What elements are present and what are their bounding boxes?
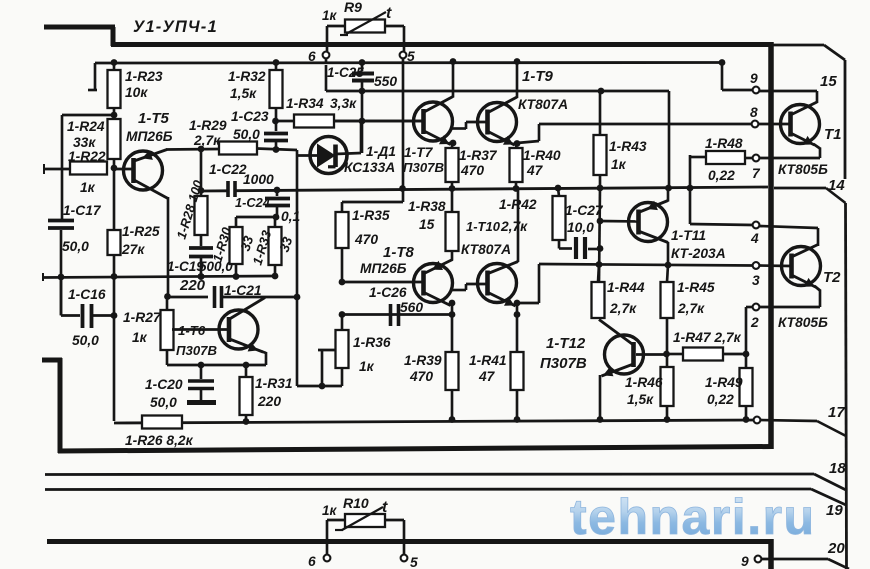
svg-text:1-R44: 1-R44: [607, 280, 645, 295]
svg-text:1-С23: 1-С23: [231, 109, 269, 124]
svg-text:1-R45: 1-R45: [677, 280, 715, 295]
svg-text:1-Т6: 1-Т6: [178, 323, 206, 338]
svg-text:560: 560: [400, 300, 423, 315]
svg-text:1-С22: 1-С22: [209, 162, 247, 177]
svg-text:КС133А: КС133А: [344, 160, 395, 175]
svg-text:1-R32: 1-R32: [228, 69, 266, 84]
svg-text:10,0: 10,0: [567, 220, 594, 235]
svg-text:1-R25: 1-R25: [122, 224, 160, 239]
svg-text:1-Т8: 1-Т8: [383, 244, 415, 261]
svg-text:3,3к: 3,3к: [330, 96, 357, 111]
svg-text:1-С20: 1-С20: [145, 377, 183, 392]
svg-text:МП26Б: МП26Б: [360, 261, 407, 276]
svg-text:2,7к: 2,7к: [677, 301, 705, 316]
svg-text:1-С17: 1-С17: [63, 203, 102, 218]
svg-text:1-С26: 1-С26: [369, 285, 407, 300]
svg-text:R10: R10: [343, 495, 369, 511]
svg-text:470: 470: [460, 163, 484, 178]
svg-text:1к: 1к: [80, 180, 96, 195]
svg-text:1,5к: 1,5к: [230, 86, 257, 101]
svg-text:1-R34: 1-R34: [286, 96, 324, 111]
svg-text:1к: 1к: [132, 330, 148, 345]
svg-text:tehnari.ru: tehnari.ru: [570, 489, 816, 545]
svg-text:КТ807А: КТ807А: [518, 97, 568, 112]
svg-text:50,0: 50,0: [62, 239, 89, 254]
svg-text:1-R36: 1-R36: [353, 335, 391, 350]
svg-text:t: t: [386, 5, 392, 22]
svg-text:1,5к: 1,5к: [627, 392, 654, 407]
svg-text:1-R38: 1-R38: [408, 199, 446, 214]
svg-text:1-R42: 1-R42: [499, 197, 537, 212]
svg-text:КТ-203А: КТ-203А: [671, 246, 726, 261]
svg-text:5: 5: [410, 555, 418, 569]
svg-text:1-R31: 1-R31: [255, 376, 293, 391]
svg-text:1-Т7: 1-Т7: [404, 145, 434, 160]
svg-text:17: 17: [828, 404, 845, 421]
svg-text:47: 47: [526, 163, 544, 178]
svg-text:1-R24: 1-R24: [67, 119, 105, 134]
svg-text:1-Т10: 1-Т10: [466, 219, 501, 234]
svg-text:1-R48: 1-R48: [705, 136, 743, 151]
svg-text:КТ807А: КТ807А: [461, 242, 511, 257]
svg-text:МП26Б: МП26Б: [126, 129, 173, 144]
svg-text:1к: 1к: [322, 503, 338, 518]
svg-text:18: 18: [829, 460, 846, 477]
svg-text:1-С27: 1-С27: [565, 203, 604, 218]
svg-text:1-R49: 1-R49: [705, 375, 743, 390]
svg-text:6: 6: [308, 554, 316, 569]
svg-text:Т1: Т1: [824, 126, 842, 143]
svg-text:1-R41: 1-R41: [469, 353, 507, 368]
svg-text:КТ805Б: КТ805Б: [778, 315, 828, 330]
svg-text:2,7к: 2,7к: [609, 301, 637, 316]
svg-text:4: 4: [750, 231, 759, 246]
svg-text:9: 9: [750, 71, 758, 86]
svg-text:2,7к: 2,7к: [193, 133, 221, 148]
svg-text:0,1: 0,1: [281, 209, 300, 224]
svg-text:1-Т5: 1-Т5: [138, 110, 170, 127]
svg-text:1-R47 2,7к: 1-R47 2,7к: [673, 330, 742, 345]
svg-text:1000: 1000: [243, 172, 274, 187]
svg-text:1-R37: 1-R37: [459, 148, 498, 163]
svg-text:20: 20: [827, 540, 845, 557]
svg-text:КТ805Б: КТ805Б: [778, 162, 828, 177]
svg-text:1-С21: 1-С21: [224, 283, 262, 298]
svg-text:1-R29: 1-R29: [189, 118, 227, 133]
svg-text:1-Т11: 1-Т11: [671, 228, 706, 243]
svg-text:t: t: [382, 499, 388, 516]
svg-text:50,0: 50,0: [72, 333, 99, 348]
svg-text:П307В: П307В: [540, 355, 587, 372]
svg-text:5: 5: [407, 49, 415, 64]
svg-text:У1-УПЧ-1: У1-УПЧ-1: [133, 18, 218, 36]
svg-text:0,22: 0,22: [708, 168, 735, 183]
svg-text:1-Т12: 1-Т12: [546, 335, 586, 352]
svg-text:1-R39: 1-R39: [404, 353, 442, 368]
svg-text:47: 47: [478, 369, 496, 384]
svg-text:1-Т9: 1-Т9: [522, 68, 554, 85]
svg-text:2: 2: [750, 315, 759, 330]
svg-text:220: 220: [257, 394, 281, 409]
svg-text:1к: 1к: [322, 8, 338, 23]
svg-text:1-Д1: 1-Д1: [366, 144, 396, 159]
svg-text:1-С25: 1-С25: [327, 65, 364, 80]
svg-text:3: 3: [752, 273, 760, 288]
svg-text:8: 8: [750, 105, 758, 120]
svg-text:1-R23: 1-R23: [125, 69, 163, 84]
svg-text:15: 15: [419, 217, 435, 232]
svg-text:П307В: П307В: [176, 343, 217, 358]
svg-text:10к: 10к: [125, 85, 148, 100]
svg-text:9: 9: [741, 554, 749, 569]
svg-text:1к: 1к: [611, 157, 627, 172]
svg-text:19: 19: [826, 502, 843, 519]
svg-text:2,7к: 2,7к: [500, 219, 528, 234]
svg-text:1-R27: 1-R27: [123, 310, 162, 325]
svg-text:Т2: Т2: [823, 269, 841, 286]
svg-text:1-R40: 1-R40: [523, 148, 561, 163]
svg-text:33к: 33к: [73, 135, 96, 150]
svg-text:1-С24: 1-С24: [235, 195, 270, 210]
svg-text:50,0: 50,0: [233, 127, 260, 142]
svg-text:1к: 1к: [359, 359, 375, 374]
svg-text:50,0: 50,0: [150, 395, 177, 410]
svg-text:1-С16: 1-С16: [68, 287, 106, 302]
svg-text:27к: 27к: [121, 242, 145, 257]
svg-text:0,22: 0,22: [707, 392, 734, 407]
svg-text:15: 15: [820, 73, 837, 90]
svg-text:1-R26 8,2к: 1-R26 8,2к: [125, 433, 194, 448]
svg-text:1-R35: 1-R35: [352, 208, 390, 223]
svg-text:1-R43: 1-R43: [609, 139, 647, 154]
svg-text:R9: R9: [344, 0, 362, 15]
svg-text:14: 14: [828, 177, 845, 194]
svg-text:550: 550: [374, 74, 397, 89]
svg-text:7: 7: [752, 166, 761, 181]
svg-text:6: 6: [308, 49, 316, 64]
svg-text:1-R46: 1-R46: [625, 375, 663, 390]
svg-text:470: 470: [354, 232, 378, 247]
svg-text:470: 470: [409, 369, 433, 384]
svg-text:П307В: П307В: [403, 160, 444, 175]
